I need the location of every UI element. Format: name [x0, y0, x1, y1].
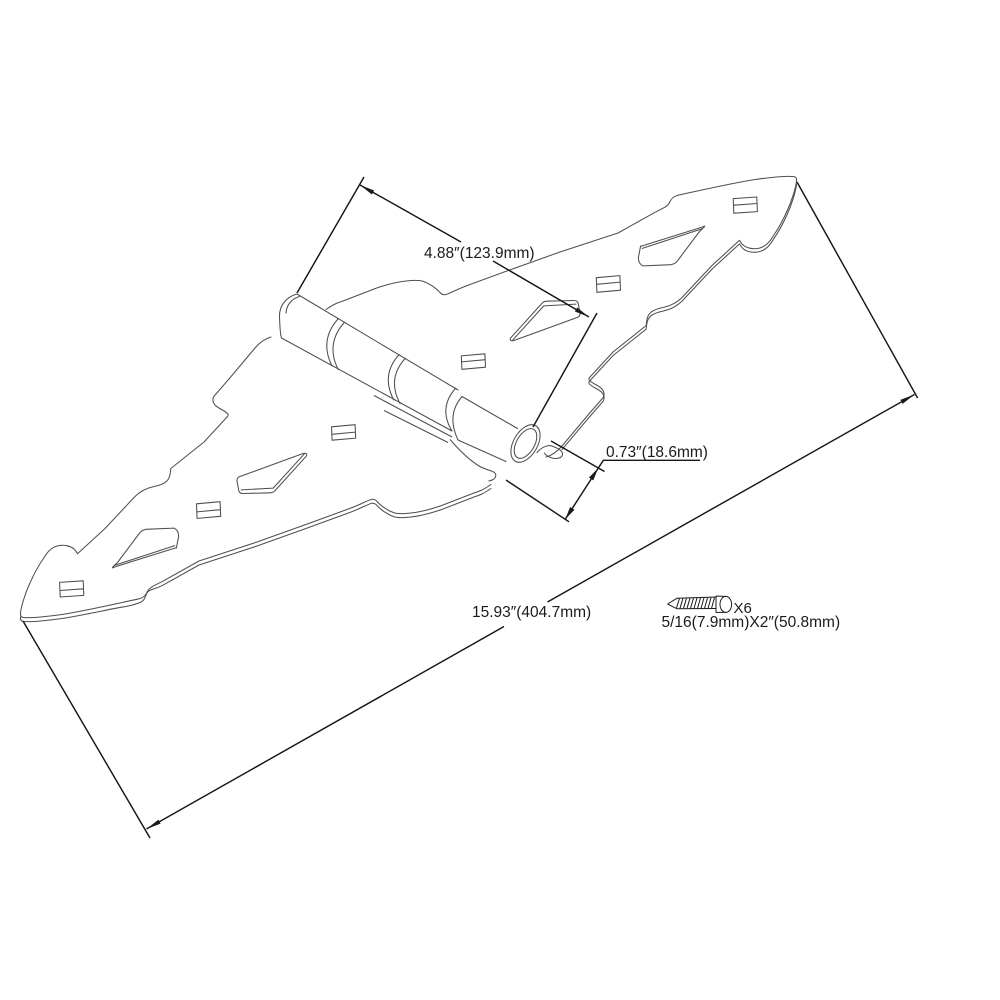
- svg-text:5/16(7.9mm)X2″(50.8mm): 5/16(7.9mm)X2″(50.8mm): [662, 614, 841, 631]
- svg-text:15.93″(404.7mm): 15.93″(404.7mm): [472, 604, 591, 621]
- svg-text:4.88″(123.9mm): 4.88″(123.9mm): [424, 245, 535, 262]
- svg-text:0.73″(18.6mm): 0.73″(18.6mm): [606, 444, 708, 461]
